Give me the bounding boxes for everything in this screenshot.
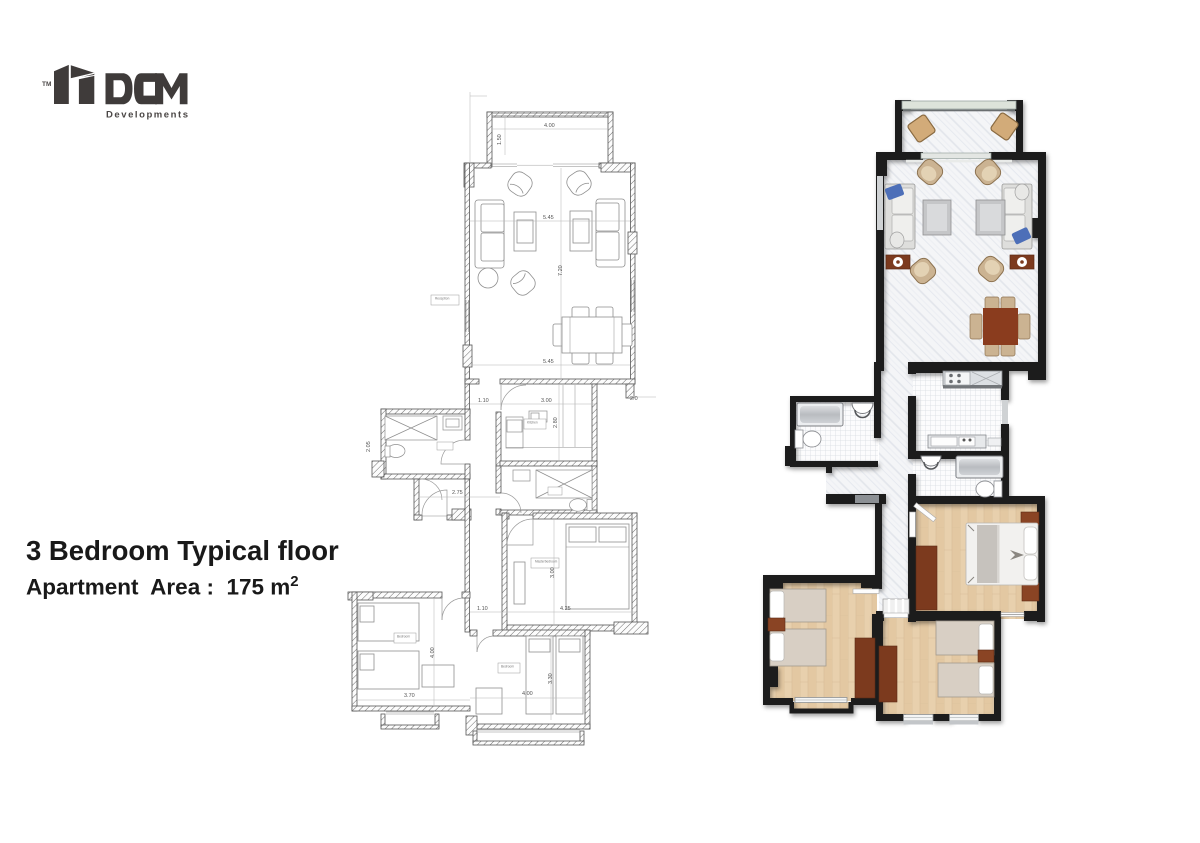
svg-text:TM: TM bbox=[42, 81, 51, 88]
svg-text:Kitchen: Kitchen bbox=[527, 421, 538, 425]
svg-text:7.20: 7.20 bbox=[558, 265, 564, 276]
svg-text:Bedroom: Bedroom bbox=[397, 635, 410, 639]
svg-text:3.00: 3.00 bbox=[550, 567, 556, 578]
svg-text:4.00: 4.00 bbox=[522, 691, 533, 697]
svg-text:2.05: 2.05 bbox=[366, 441, 372, 452]
svg-text:4.25: 4.25 bbox=[560, 606, 571, 612]
svg-text:1.10: 1.10 bbox=[477, 606, 488, 612]
svg-text:Masterbedroom: Masterbedroom bbox=[535, 560, 558, 564]
svg-text:1.10: 1.10 bbox=[478, 398, 489, 404]
svg-text:Reception: Reception bbox=[435, 297, 450, 301]
svg-text:2.80: 2.80 bbox=[553, 417, 559, 428]
svg-text:3.00: 3.00 bbox=[541, 398, 552, 404]
svg-text:3.30: 3.30 bbox=[548, 673, 554, 684]
svg-text:3.70: 3.70 bbox=[404, 693, 415, 699]
svg-text:5.45: 5.45 bbox=[543, 215, 554, 221]
svg-text:4.00: 4.00 bbox=[544, 123, 555, 129]
svg-text:1.50: 1.50 bbox=[497, 134, 503, 145]
svg-text:Developments: Developments bbox=[106, 110, 190, 121]
svg-text:Bedroom: Bedroom bbox=[501, 665, 514, 669]
svg-text:4.00: 4.00 bbox=[430, 647, 436, 658]
svg-text:2.75: 2.75 bbox=[452, 490, 463, 496]
svg-text:2.0: 2.0 bbox=[630, 396, 638, 402]
svg-text:5.45: 5.45 bbox=[543, 359, 554, 365]
